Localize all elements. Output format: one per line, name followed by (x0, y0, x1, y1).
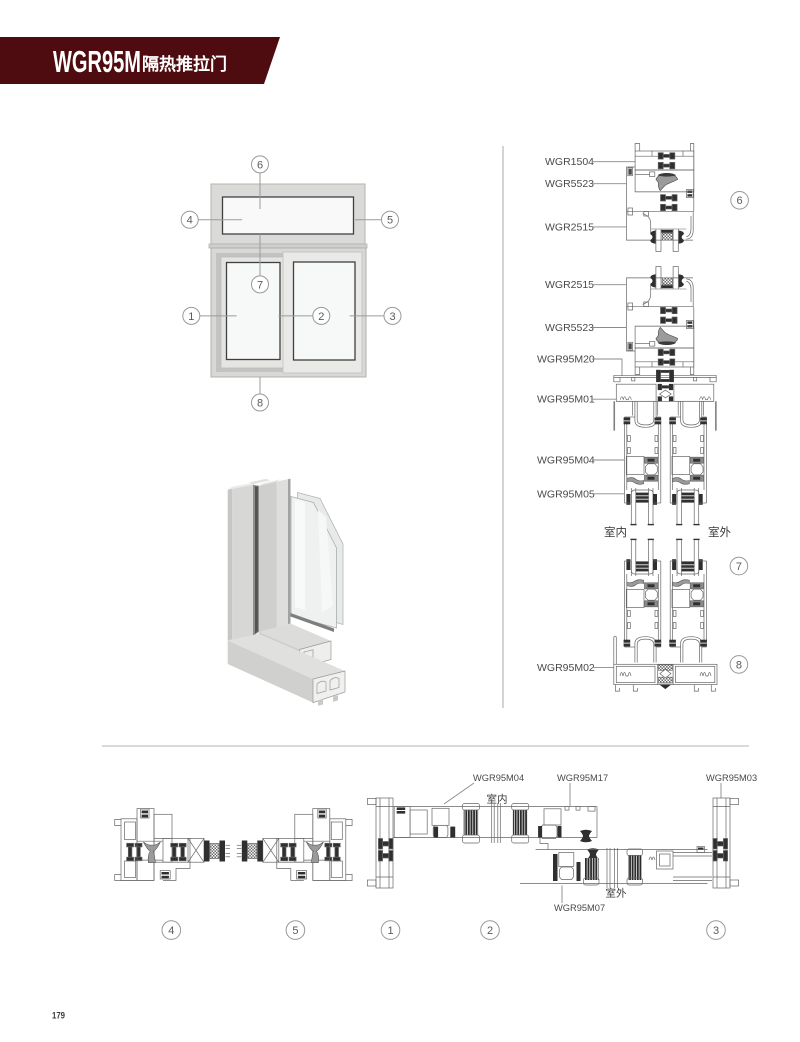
svg-text:室外: 室外 (708, 525, 731, 539)
svg-text:WGR2515: WGR2515 (545, 279, 594, 291)
svg-text:WGR2515: WGR2515 (545, 221, 594, 233)
svg-text:8: 8 (257, 397, 263, 409)
svg-text:WGR95M04: WGR95M04 (473, 773, 524, 783)
svg-text:8: 8 (736, 659, 742, 671)
svg-text:WGR5523: WGR5523 (545, 178, 594, 190)
svg-text:WGR95M17: WGR95M17 (557, 773, 608, 783)
svg-text:4: 4 (168, 925, 174, 937)
svg-text:WGR95M07: WGR95M07 (554, 903, 605, 913)
svg-text:1: 1 (188, 311, 194, 323)
svg-text:室外: 室外 (606, 887, 627, 900)
svg-text:室内: 室内 (487, 793, 508, 806)
svg-text:3: 3 (389, 311, 395, 323)
svg-text:1: 1 (387, 925, 393, 937)
svg-text:7: 7 (257, 279, 263, 291)
svg-text:7: 7 (736, 561, 742, 573)
svg-text:2: 2 (318, 311, 324, 323)
svg-text:4: 4 (187, 215, 193, 227)
svg-text:隔热推拉门: 隔热推拉门 (142, 54, 227, 74)
svg-text:3: 3 (713, 925, 719, 937)
svg-text:5: 5 (292, 925, 298, 937)
svg-text:6: 6 (257, 159, 263, 171)
svg-text:WGR5523: WGR5523 (545, 322, 594, 334)
svg-text:5: 5 (387, 215, 393, 227)
svg-text:2: 2 (487, 925, 493, 937)
svg-text:6: 6 (737, 195, 743, 207)
svg-text:WGR95M05: WGR95M05 (537, 488, 595, 500)
svg-text:WGR95M01: WGR95M01 (537, 394, 595, 406)
svg-text:WGR95M03: WGR95M03 (706, 773, 757, 783)
svg-text:WGR1504: WGR1504 (545, 156, 594, 168)
svg-text:179: 179 (52, 1011, 65, 1022)
svg-text:WGR95M04: WGR95M04 (537, 455, 595, 467)
svg-text:室内: 室内 (604, 525, 627, 539)
svg-text:WGR95M20: WGR95M20 (537, 354, 595, 366)
svg-text:WGR95M: WGR95M (53, 44, 141, 79)
svg-text:WGR95M02: WGR95M02 (537, 662, 595, 674)
